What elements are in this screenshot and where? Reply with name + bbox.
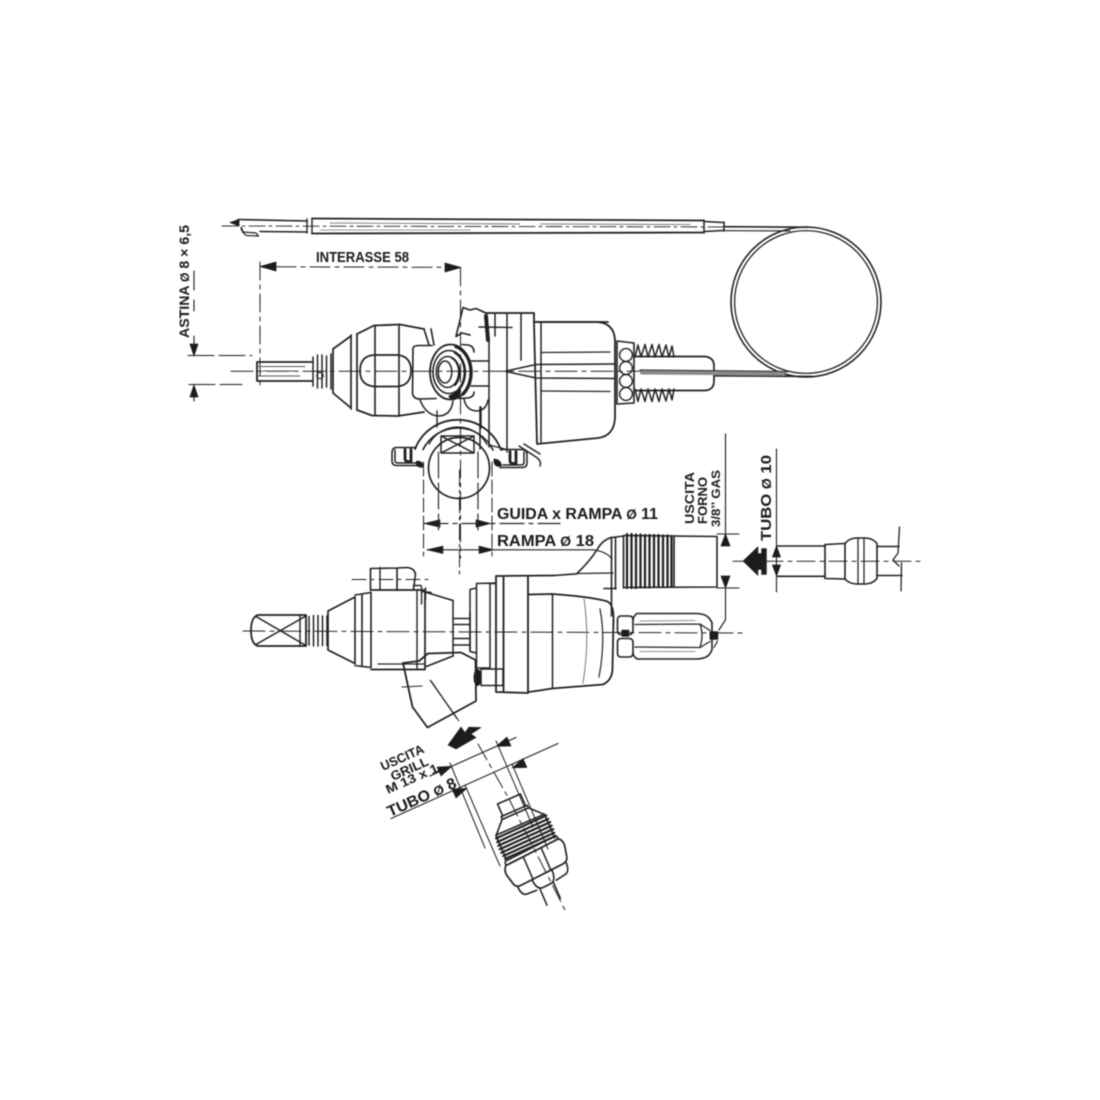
svg-text:INTERASSE 58: INTERASSE 58 bbox=[316, 249, 409, 266]
svg-text:USCITA: USCITA bbox=[683, 472, 697, 524]
svg-text:FORNO: FORNO bbox=[696, 477, 710, 524]
svg-text:GUIDA x RAMPA Ø 11: GUIDA x RAMPA Ø 11 bbox=[497, 506, 658, 523]
svg-text:ASTINA Ø 8 × 6,5: ASTINA Ø 8 × 6,5 bbox=[176, 225, 192, 338]
svg-text:TUBO Ø 10: TUBO Ø 10 bbox=[758, 455, 775, 541]
svg-text:3/8’’ GAS: 3/8’’ GAS bbox=[709, 470, 723, 527]
svg-text:RAMPA Ø 18: RAMPA Ø 18 bbox=[497, 533, 594, 550]
